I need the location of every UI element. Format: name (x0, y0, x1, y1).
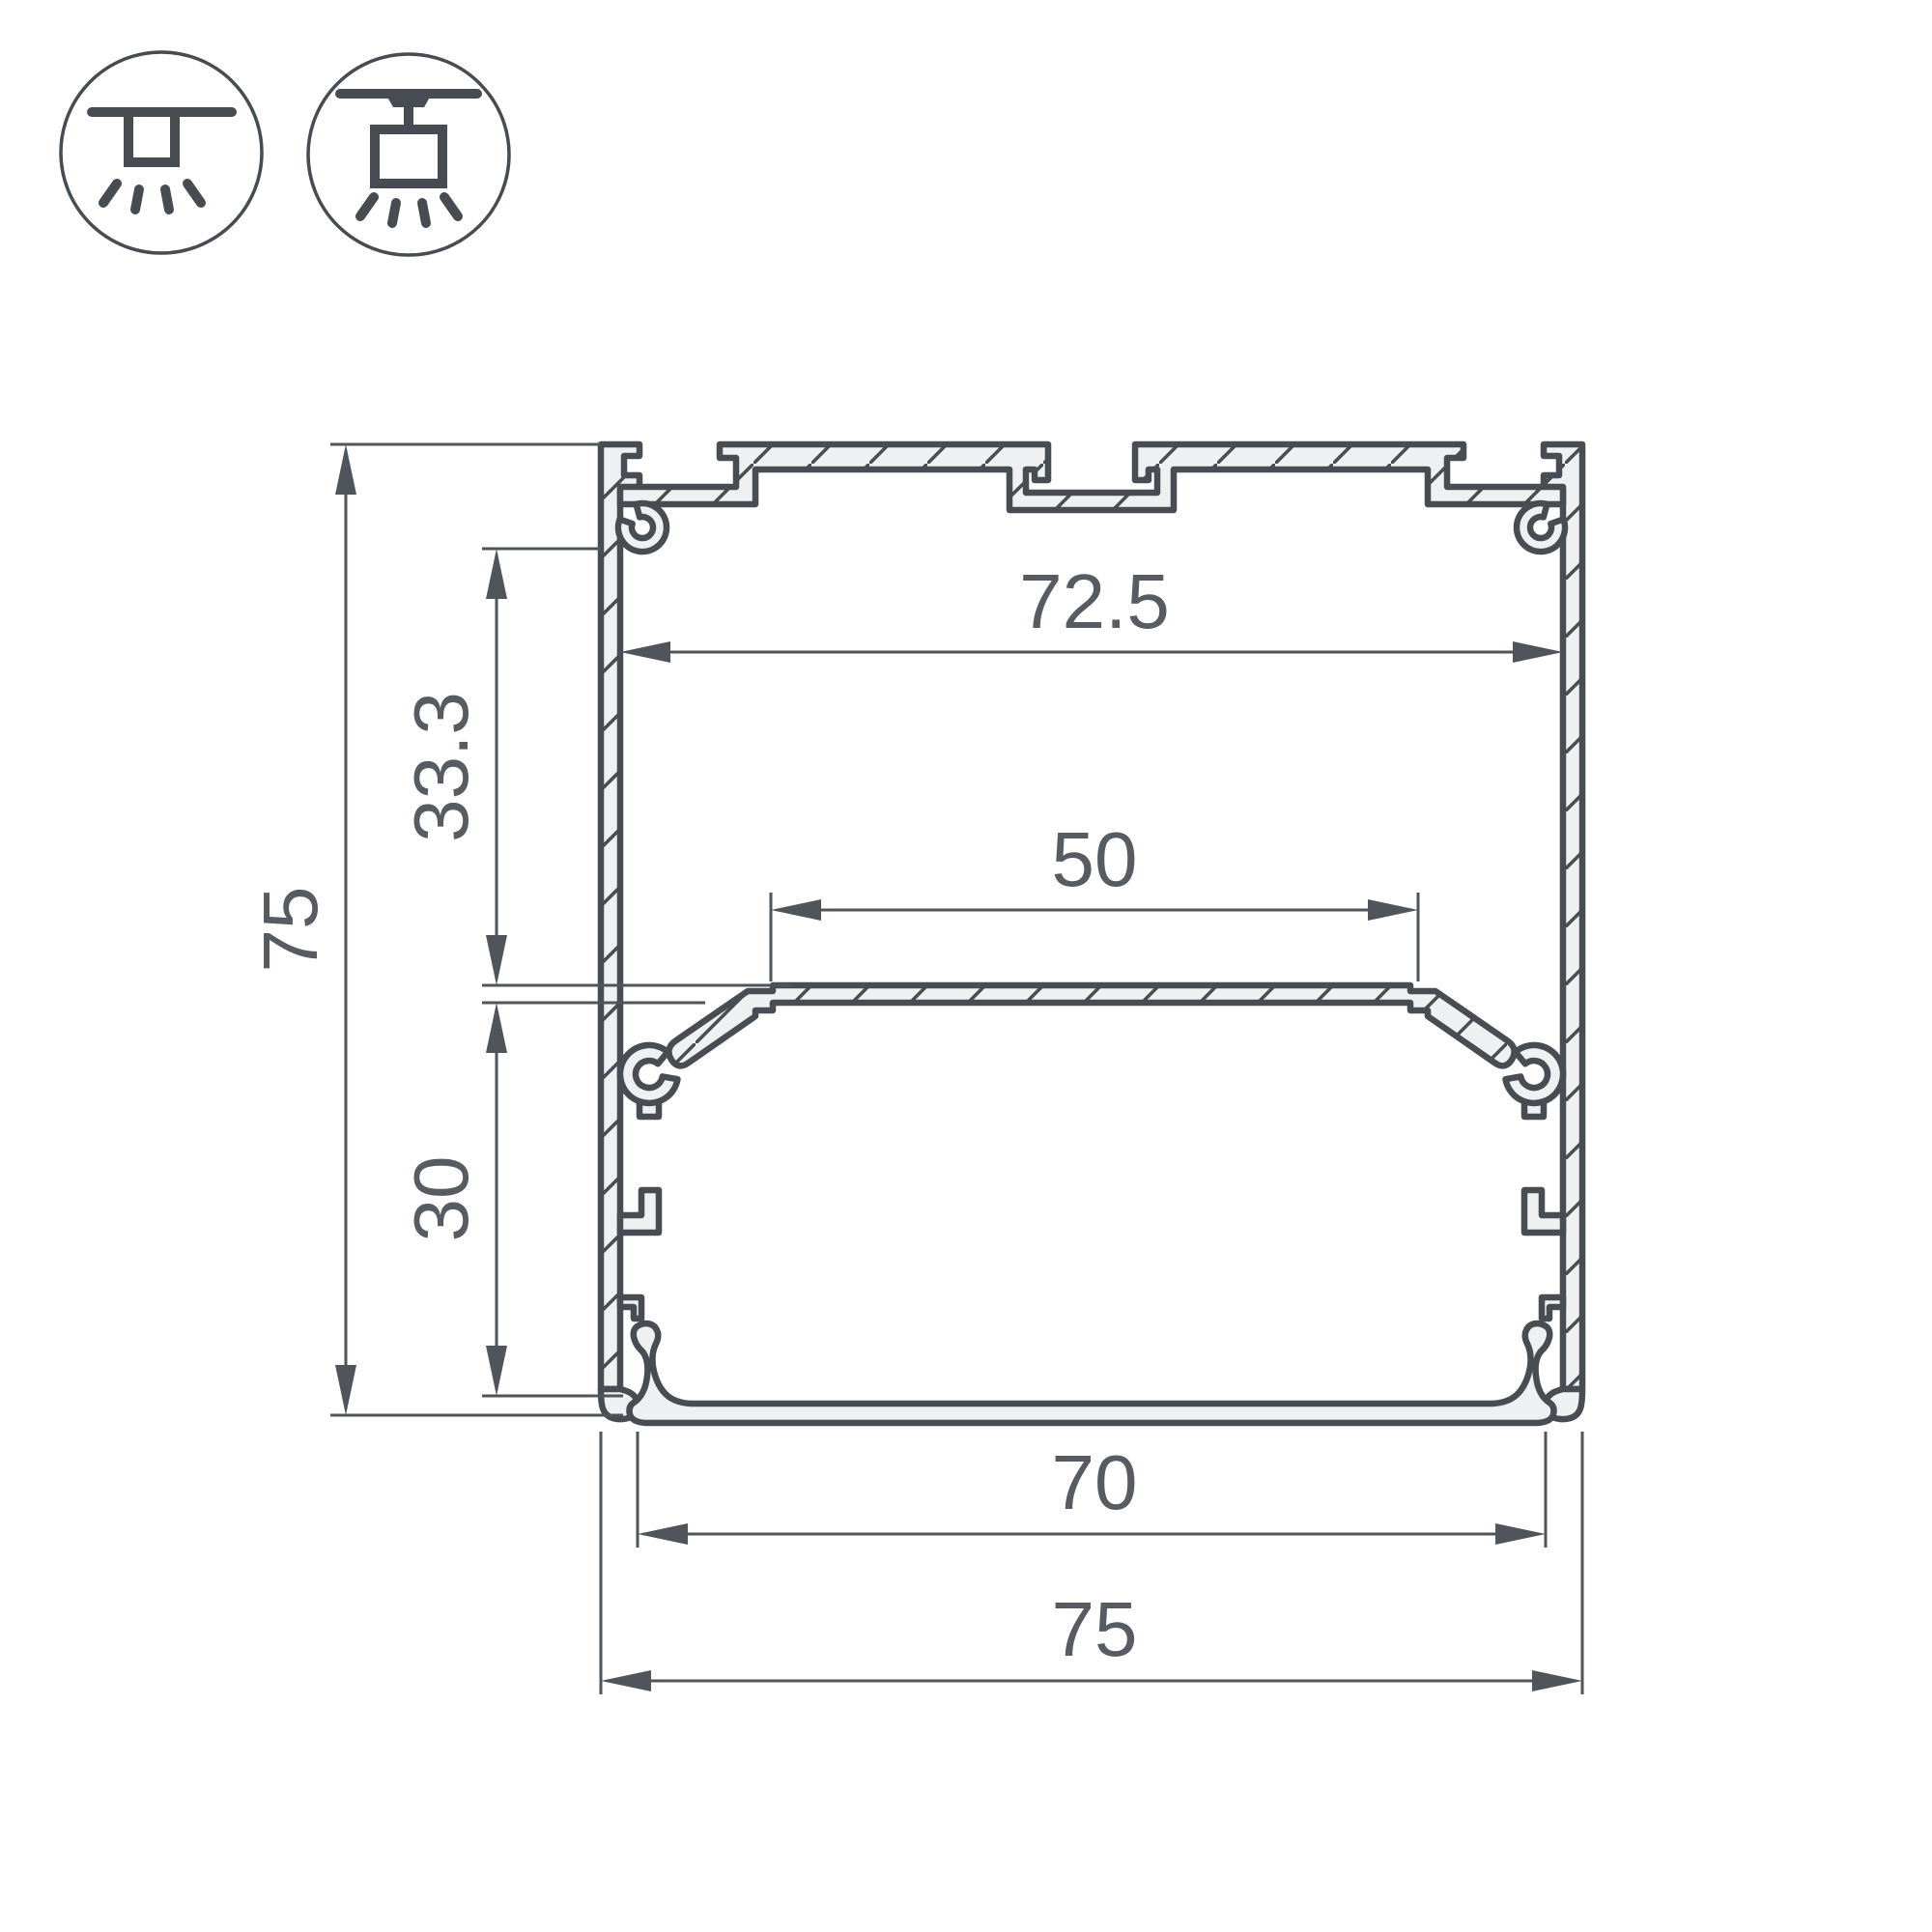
icon-circle (61, 52, 262, 253)
surface-pendant-mount-icon (308, 54, 509, 255)
light-rays (103, 184, 201, 210)
right-wall (1544, 444, 1582, 1389)
fixture-box (128, 112, 175, 162)
dim-inner-width: 72.5 (620, 558, 1563, 663)
dim-label-upper-chamber-depth: 33.3 (398, 692, 484, 842)
profile-drawing-svg: 72.5 50 70 75 (0, 0, 1932, 1932)
dim-overall-height: 75 (247, 444, 623, 1415)
dim-label-overall-width: 75 (1052, 1586, 1138, 1672)
right-plate-clamp (1506, 1045, 1564, 1103)
left-diffuser-stub (620, 1297, 641, 1319)
left-corner-spring-hook (618, 503, 667, 552)
right-corner-spring-hook (1517, 503, 1565, 552)
recessed-ceiling-mount-icon (61, 52, 262, 253)
dim-led-plate-width: 50 (771, 816, 1418, 981)
mount-type-icons (61, 52, 509, 255)
diffuser-cover (630, 1323, 1554, 1423)
right-diffuser-stub (1542, 1297, 1563, 1319)
dim-label-led-plate-width: 50 (1052, 816, 1138, 902)
dimension-annotations: 72.5 50 70 75 (247, 444, 1582, 1694)
technical-drawing-canvas: 72.5 50 70 75 (0, 0, 1932, 1932)
fixture-box (375, 129, 442, 184)
led-plate-with-arms (668, 985, 1514, 1065)
icon-circle (308, 54, 509, 255)
right-lower-clip (1524, 1190, 1563, 1233)
left-lower-clip (620, 1190, 659, 1233)
dim-label-inner-width: 72.5 (1019, 558, 1170, 644)
dim-label-overall-height: 75 (247, 887, 333, 973)
left-plate-clamp (620, 1045, 678, 1103)
top-plate-assembly (620, 444, 1563, 510)
dim-label-lower-chamber-depth: 30 (398, 1156, 484, 1242)
light-rays (360, 197, 458, 223)
dim-label-bottom-opening-width: 70 (1052, 1439, 1138, 1525)
dim-upper-chamber-depth: 33.3 (398, 549, 792, 985)
dim-bottom-opening-width: 70 (638, 1432, 1546, 1548)
left-wall (601, 444, 639, 1389)
